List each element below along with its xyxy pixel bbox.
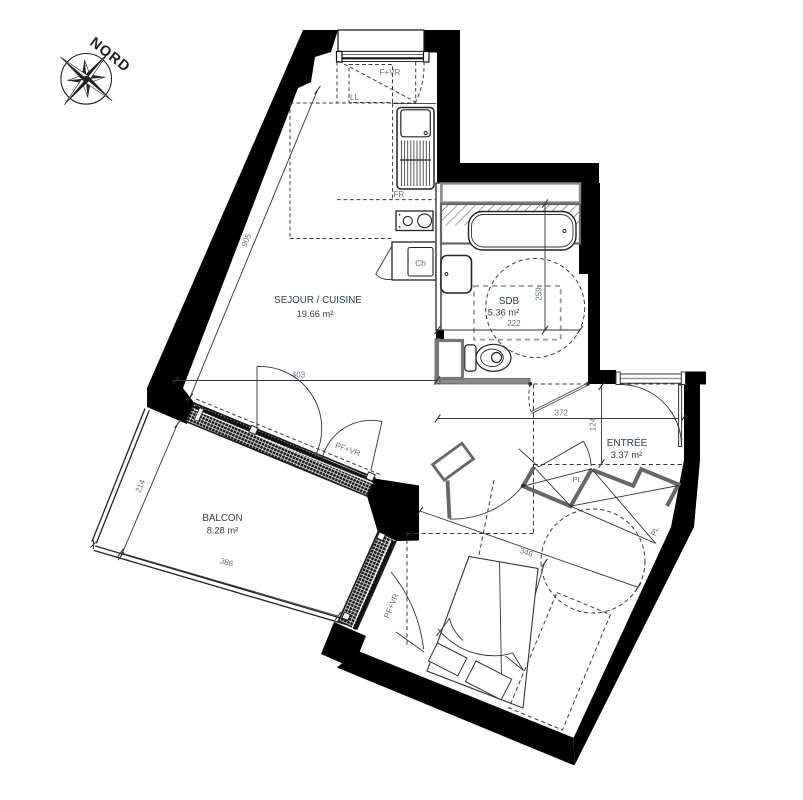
svg-text:ENTRÉE: ENTRÉE (607, 436, 648, 449)
svg-text:222: 222 (507, 319, 521, 328)
svg-text:SEJOUR / CUISINE: SEJOUR / CUISINE (274, 295, 362, 306)
svg-text:5.36 m²: 5.36 m² (488, 308, 520, 318)
svg-text:372: 372 (555, 409, 569, 418)
svg-text:LL: LL (350, 93, 359, 102)
svg-text:259: 259 (535, 287, 544, 301)
svg-text:8.28 m²: 8.28 m² (207, 526, 239, 536)
svg-text:3.37 m²: 3.37 m² (611, 450, 643, 460)
svg-text:FR: FR (394, 190, 405, 199)
svg-text:SDB: SDB (499, 296, 520, 307)
svg-text:403: 403 (292, 371, 306, 380)
svg-text:124: 124 (589, 417, 598, 431)
svg-text:Ch: Ch (415, 258, 426, 268)
svg-text:F+VR: F+VR (380, 68, 401, 77)
svg-text:PL: PL (572, 475, 581, 484)
svg-text:19.66 m²: 19.66 m² (297, 309, 334, 319)
svg-text:BALCON: BALCON (202, 513, 242, 524)
